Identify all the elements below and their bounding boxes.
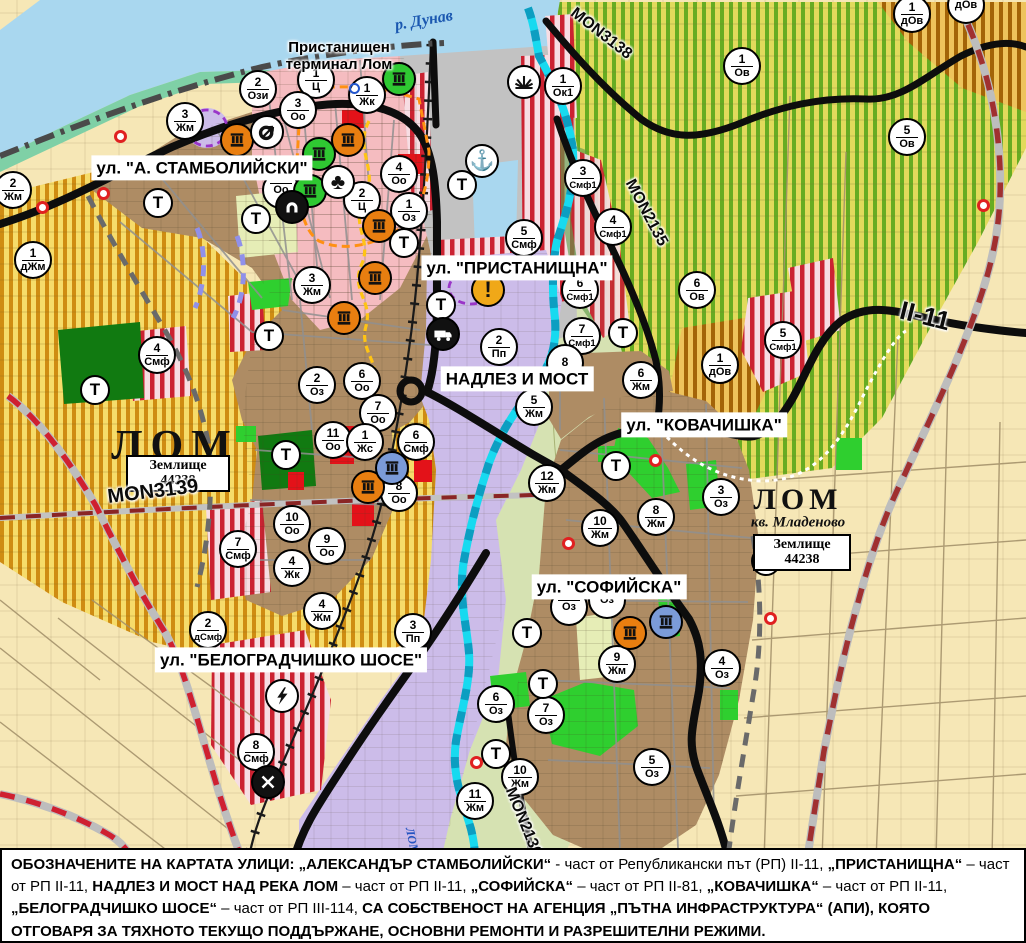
legend-text-segment: - част от Републикански път (РП) II-11, [551, 856, 827, 873]
legend-text-segment: – част от РП II-11, [338, 878, 471, 895]
legend-text-segment: – част от РП III-114, [217, 900, 362, 917]
legend-text-segment: НАДЛЕЗ И МОСТ НАД РЕКА ЛОМ [92, 878, 338, 895]
street-label: ул. "А. СТАМБОЛИЙСКИ" [91, 155, 312, 180]
legend-text-segment: „КОВАЧИШКА“ [707, 878, 819, 895]
legend-text-segment: „ПРИСТАНИЩНА“ [828, 856, 963, 873]
street-label: НАДЛЕЗ И МОСТ [441, 366, 594, 391]
legend-footer-text: ОБОЗНАЧЕНИТЕ НА КАРТАТА УЛИЦИ: „АЛЕКСАНД… [0, 848, 1026, 943]
street-label: ул. "ПРИСТАНИЩНА" [421, 255, 612, 280]
street-label: ул. "КОВАЧИШКА" [621, 412, 787, 437]
legend-text-segment: – част от РП II-11, [819, 878, 947, 895]
street-label: ул. "БЕЛОГРАДЧИШКО ШОСЕ" [155, 647, 427, 672]
legend-text-segment: ОБОЗНАЧЕНИТЕ НА КАРТАТА УЛИЦИ: [11, 856, 299, 873]
legend-text-segment: „БЕЛОГРАДЧИШКО ШОСЕ“ [11, 900, 217, 917]
legend-text-segment: „СОФИЙСКА“ [471, 878, 573, 895]
legend-text-segment: „АЛЕКСАНДЪР СТАМБОЛИЙСКИ“ [299, 856, 551, 873]
legend-text-segment: – част от РП II-81, [573, 878, 707, 895]
map-stage: 2Ози1Ц1Жк3Оо3Жм4Оо2Ц1ОзОо2Жм1дЖм3Жм1Ок15… [0, 0, 1026, 943]
street-label: ул. "СОФИЙСКА" [532, 574, 687, 599]
street-label-layer: ул. "А. СТАМБОЛИЙСКИ"ул. "ПРИСТАНИЩНА"НА… [0, 0, 1026, 943]
